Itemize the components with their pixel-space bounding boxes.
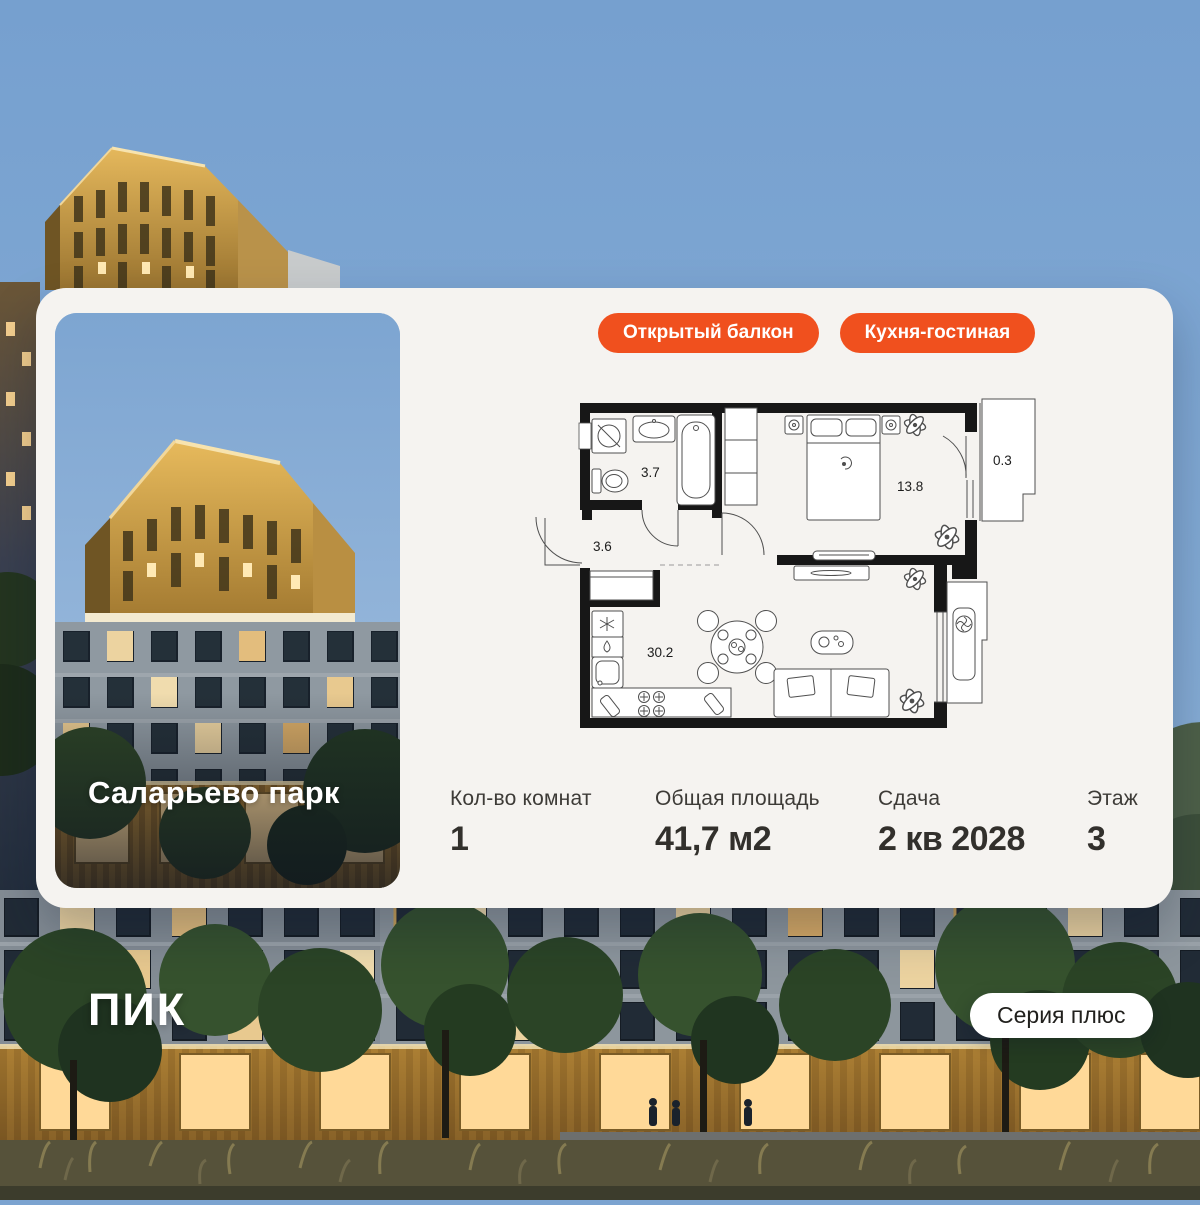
series-plus-badge: Серия плюс: [970, 993, 1153, 1038]
project-name-label: Саларьево парк: [88, 775, 340, 811]
bathroom-fixtures: [592, 415, 715, 505]
dining-table: [698, 611, 777, 684]
shaft: [579, 423, 591, 449]
pik-logo: ПИК: [88, 984, 186, 1036]
stat-delivery-value: 2 кв 2028: [878, 820, 1025, 859]
area-bedroom: 13.8: [897, 479, 923, 494]
stat-area-label: Общая площадь: [655, 787, 820, 811]
listing-card[interactable]: Саларьево парк Открытый балкон Кухня-гос…: [36, 288, 1173, 908]
stat-floor-label: Этаж: [1087, 787, 1138, 811]
bottom-building: [0, 890, 1200, 1200]
sofa: [774, 669, 889, 717]
area-bathroom: 3.7: [641, 465, 660, 480]
stat-floor: Этаж 3: [1087, 787, 1138, 859]
stat-rooms: Кол-во комнат 1: [450, 787, 592, 859]
loggia-outline: [947, 582, 987, 703]
area-hallway: 3.6: [593, 539, 612, 554]
area-balcony: 0.3: [993, 453, 1012, 468]
area-kitchen-living: 30.2: [647, 645, 673, 660]
stat-rooms-label: Кол-во комнат: [450, 787, 592, 811]
bedroom-furniture: [725, 408, 900, 560]
stat-delivery: Сдача 2 кв 2028: [878, 787, 1025, 859]
stat-rooms-value: 1: [450, 820, 592, 859]
feature-badges: Открытый балкон Кухня-гостиная: [598, 313, 1035, 353]
badge-kitchen-living: Кухня-гостиная: [840, 313, 1036, 353]
badge-open-balcony: Открытый балкон: [598, 313, 819, 353]
stat-area-value: 41,7 м2: [655, 820, 820, 859]
stat-floor-value: 3: [1087, 820, 1138, 859]
kitchen-living-furniture: [590, 566, 889, 718]
project-photo: Саларьево парк: [55, 313, 400, 888]
stat-area: Общая площадь 41,7 м2: [655, 787, 820, 859]
floor-plan: 3.7 3.6 13.8 0.3 30.2: [530, 395, 1040, 740]
stat-delivery-label: Сдача: [878, 787, 1025, 811]
